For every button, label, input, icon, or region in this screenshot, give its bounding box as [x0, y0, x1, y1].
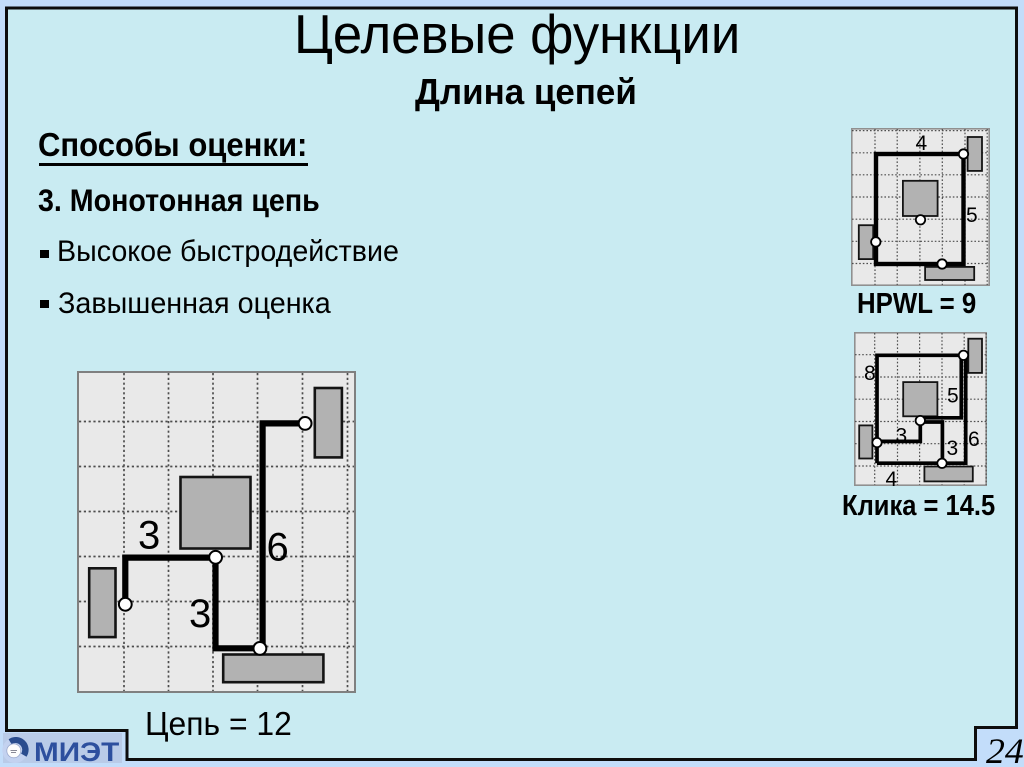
svg-text:5: 5: [947, 385, 959, 408]
svg-text:3: 3: [896, 425, 908, 448]
svg-text:8: 8: [864, 362, 876, 385]
svg-text:4: 4: [886, 468, 898, 486]
svg-text:6: 6: [267, 526, 289, 570]
svg-text:5: 5: [966, 204, 978, 227]
svg-text:3: 3: [189, 592, 211, 636]
svg-text:3: 3: [947, 437, 959, 460]
svg-text:3: 3: [138, 514, 160, 558]
svg-text:4: 4: [916, 132, 928, 155]
svg-text:6: 6: [968, 428, 980, 451]
